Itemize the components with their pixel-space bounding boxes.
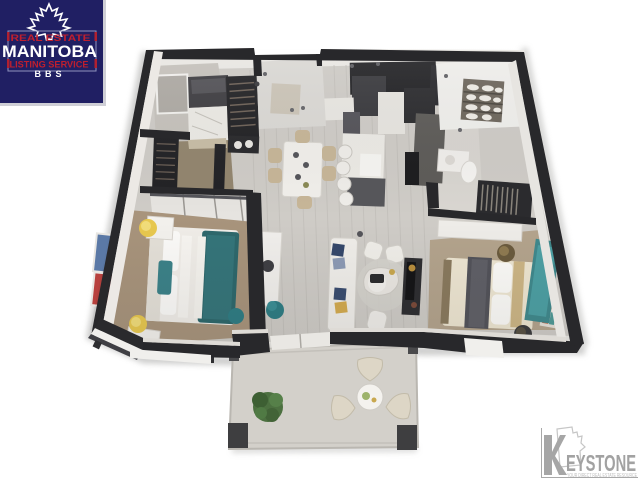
svg-text:MANITOBA: MANITOBA [2, 43, 97, 61]
svg-text:BBS: BBS [34, 69, 65, 79]
svg-text:YOUR DIRECT REAL ESTATE RESOUR: YOUR DIRECT REAL ESTATE RESOURCE [567, 473, 637, 479]
svg-text:LISTING SERVICE: LISTING SERVICE [10, 60, 89, 70]
